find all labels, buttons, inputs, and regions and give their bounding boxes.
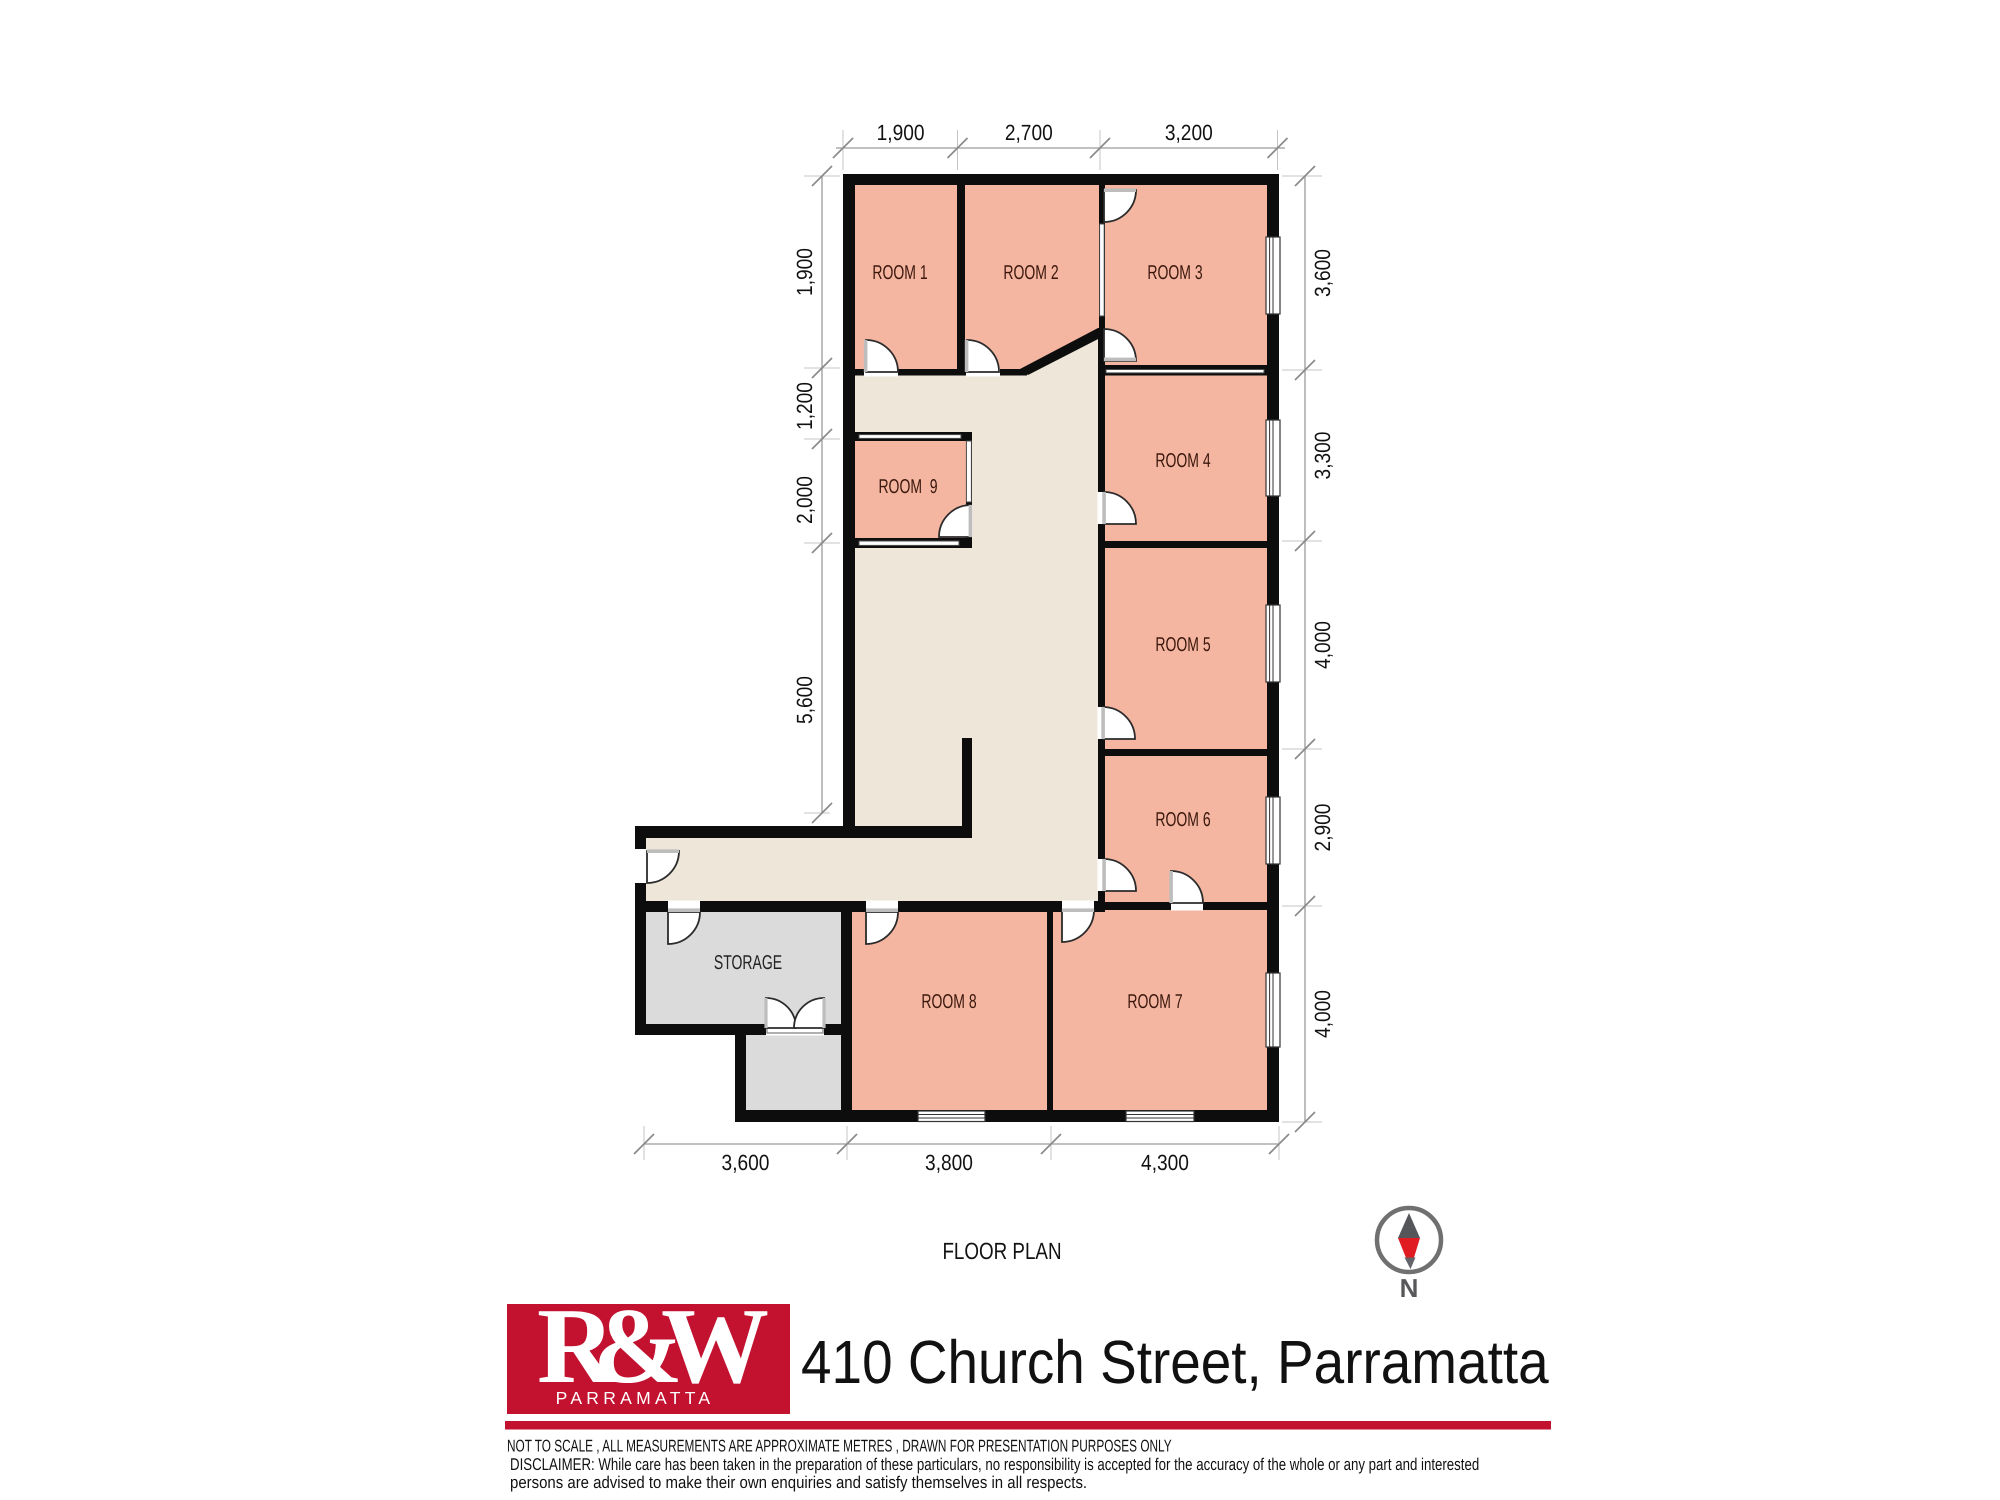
svg-text:ROOM 6: ROOM 6 — [1155, 809, 1210, 831]
svg-text:3,200: 3,200 — [1165, 120, 1213, 145]
svg-text:ROOM 4: ROOM 4 — [1155, 450, 1210, 472]
svg-text:5,600: 5,600 — [792, 676, 817, 724]
svg-text:ROOM 1: ROOM 1 — [872, 262, 927, 284]
svg-text:ROOM 9: ROOM 9 — [878, 476, 937, 498]
svg-text:DISCLAIMER: While care has be: DISCLAIMER: While care has been taken in… — [510, 1455, 1479, 1474]
svg-text:3,800: 3,800 — [925, 1150, 973, 1175]
svg-text:ROOM 5: ROOM 5 — [1155, 634, 1210, 656]
svg-text:4,000: 4,000 — [1310, 990, 1335, 1038]
svg-text:ROOM 8: ROOM 8 — [921, 991, 976, 1013]
svg-text:N: N — [1400, 1273, 1419, 1303]
svg-text:4,000: 4,000 — [1310, 621, 1335, 669]
svg-text:2,900: 2,900 — [1310, 804, 1335, 852]
svg-text:3,600: 3,600 — [722, 1150, 770, 1175]
svg-text:2,000: 2,000 — [792, 476, 817, 524]
svg-text:1,900: 1,900 — [877, 120, 925, 145]
svg-text:STORAGE: STORAGE — [714, 952, 782, 974]
svg-text:410 Church Street, Parramatta: 410 Church Street, Parramatta — [801, 1328, 1549, 1396]
svg-text:1,200: 1,200 — [792, 382, 817, 430]
svg-text:NOT TO SCALE , ALL MEASUREMENT: NOT TO SCALE , ALL MEASUREMENTS ARE APPR… — [507, 1437, 1172, 1456]
svg-text:FLOOR PLAN: FLOOR PLAN — [942, 1238, 1061, 1264]
svg-text:3,600: 3,600 — [1310, 249, 1335, 297]
svg-text:ROOM 3: ROOM 3 — [1147, 262, 1202, 284]
svg-text:4,300: 4,300 — [1141, 1150, 1189, 1175]
svg-text:persons are advised to make th: persons are advised to make their own en… — [510, 1473, 1087, 1492]
svg-text:1,900: 1,900 — [792, 248, 817, 296]
svg-text:2,700: 2,700 — [1005, 120, 1053, 145]
svg-text:ROOM 7: ROOM 7 — [1127, 991, 1182, 1013]
svg-text:PARRAMATTA: PARRAMATTA — [556, 1388, 715, 1408]
svg-text:ROOM 2: ROOM 2 — [1003, 262, 1058, 284]
svg-text:3,300: 3,300 — [1310, 432, 1335, 480]
